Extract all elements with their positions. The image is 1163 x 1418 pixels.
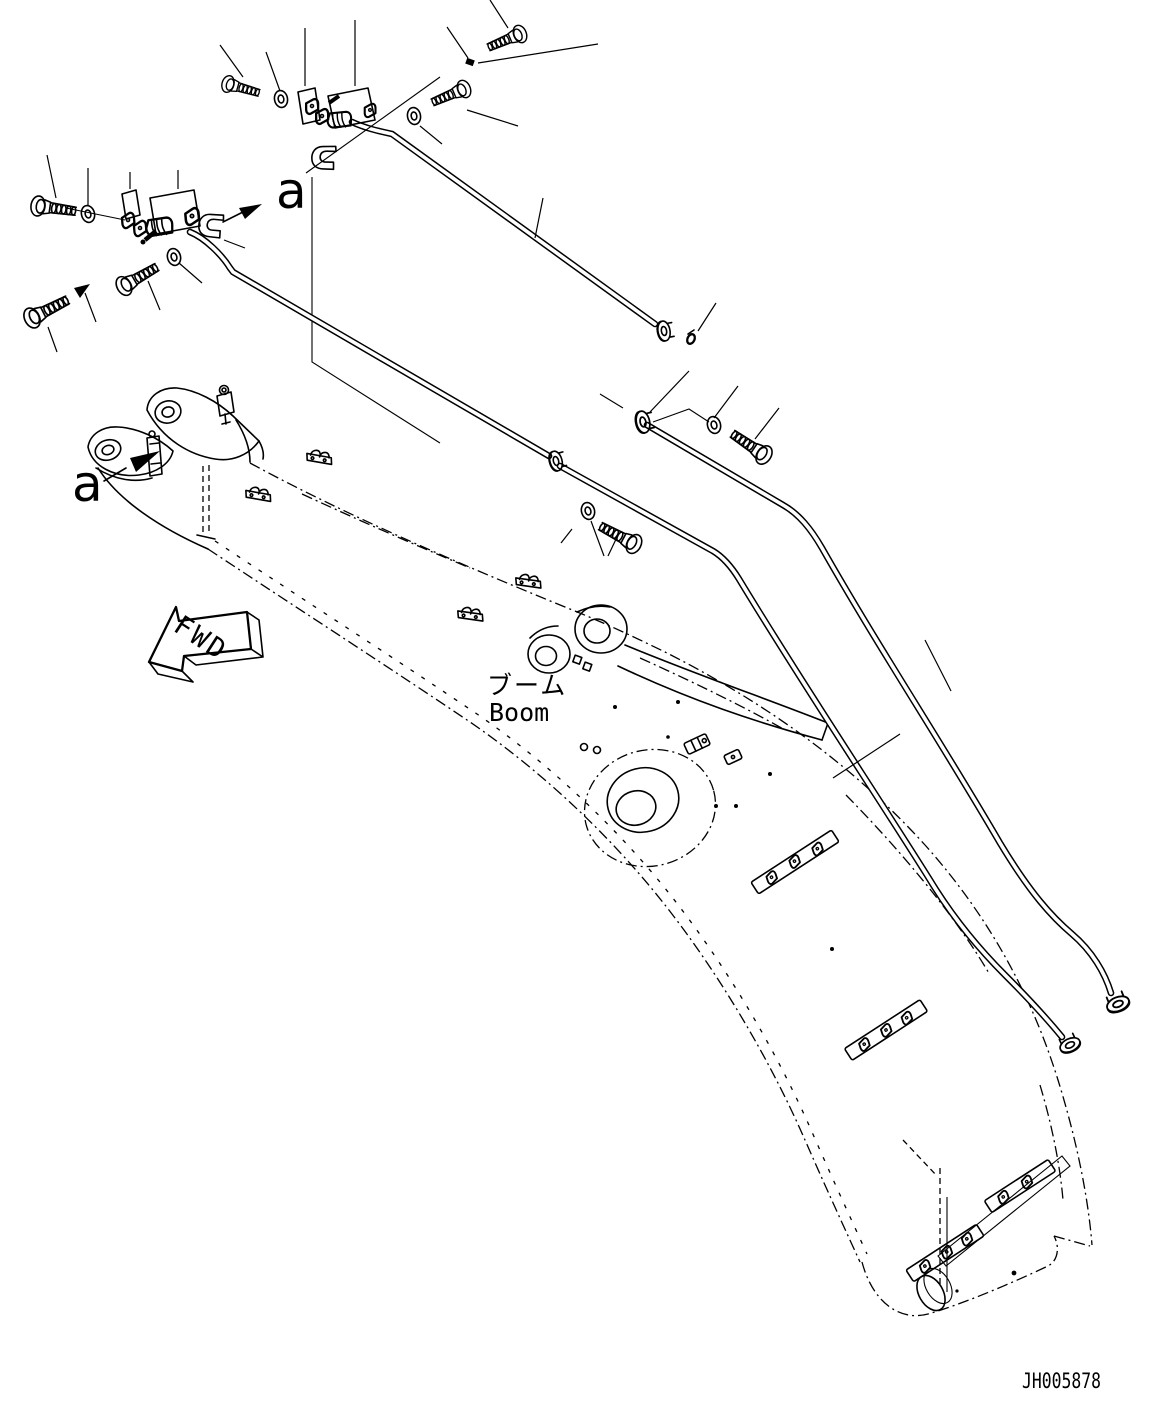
- bolt: [429, 78, 473, 110]
- washer: [580, 501, 597, 521]
- washer: [406, 107, 422, 126]
- bolt: [727, 425, 775, 467]
- view-a-label-front: a: [72, 455, 103, 513]
- tube-flange: [1103, 990, 1131, 1015]
- washer: [80, 204, 97, 224]
- boom-label-en: Boom: [489, 698, 549, 727]
- drawing-number: JH005878: [1022, 1369, 1101, 1393]
- bolt: [30, 195, 77, 221]
- bolt: [21, 291, 73, 331]
- washer: [706, 415, 723, 435]
- high-pressure-tubes: [190, 122, 1132, 1056]
- fwd-arrow-icon: FWD: [149, 607, 263, 682]
- view-a-label-top: a: [276, 162, 307, 220]
- bolt: [596, 517, 645, 556]
- clamp-bar: [751, 830, 839, 894]
- clamp-rail: [906, 1224, 984, 1281]
- left-clamp-hardware: a: [21, 155, 307, 352]
- boom-label-jp: ブーム: [487, 671, 567, 700]
- tube-flange: [656, 320, 675, 342]
- bolt: [113, 258, 162, 298]
- parts-diagram-page: a a: [0, 0, 1163, 1418]
- view-a-arrow-icon-top: [223, 204, 262, 222]
- washer: [273, 90, 289, 109]
- bolt: [485, 23, 529, 55]
- clamp-bar: [844, 1000, 927, 1061]
- bolt: [220, 74, 261, 101]
- boom-piping-diagram: a a: [0, 0, 1163, 1418]
